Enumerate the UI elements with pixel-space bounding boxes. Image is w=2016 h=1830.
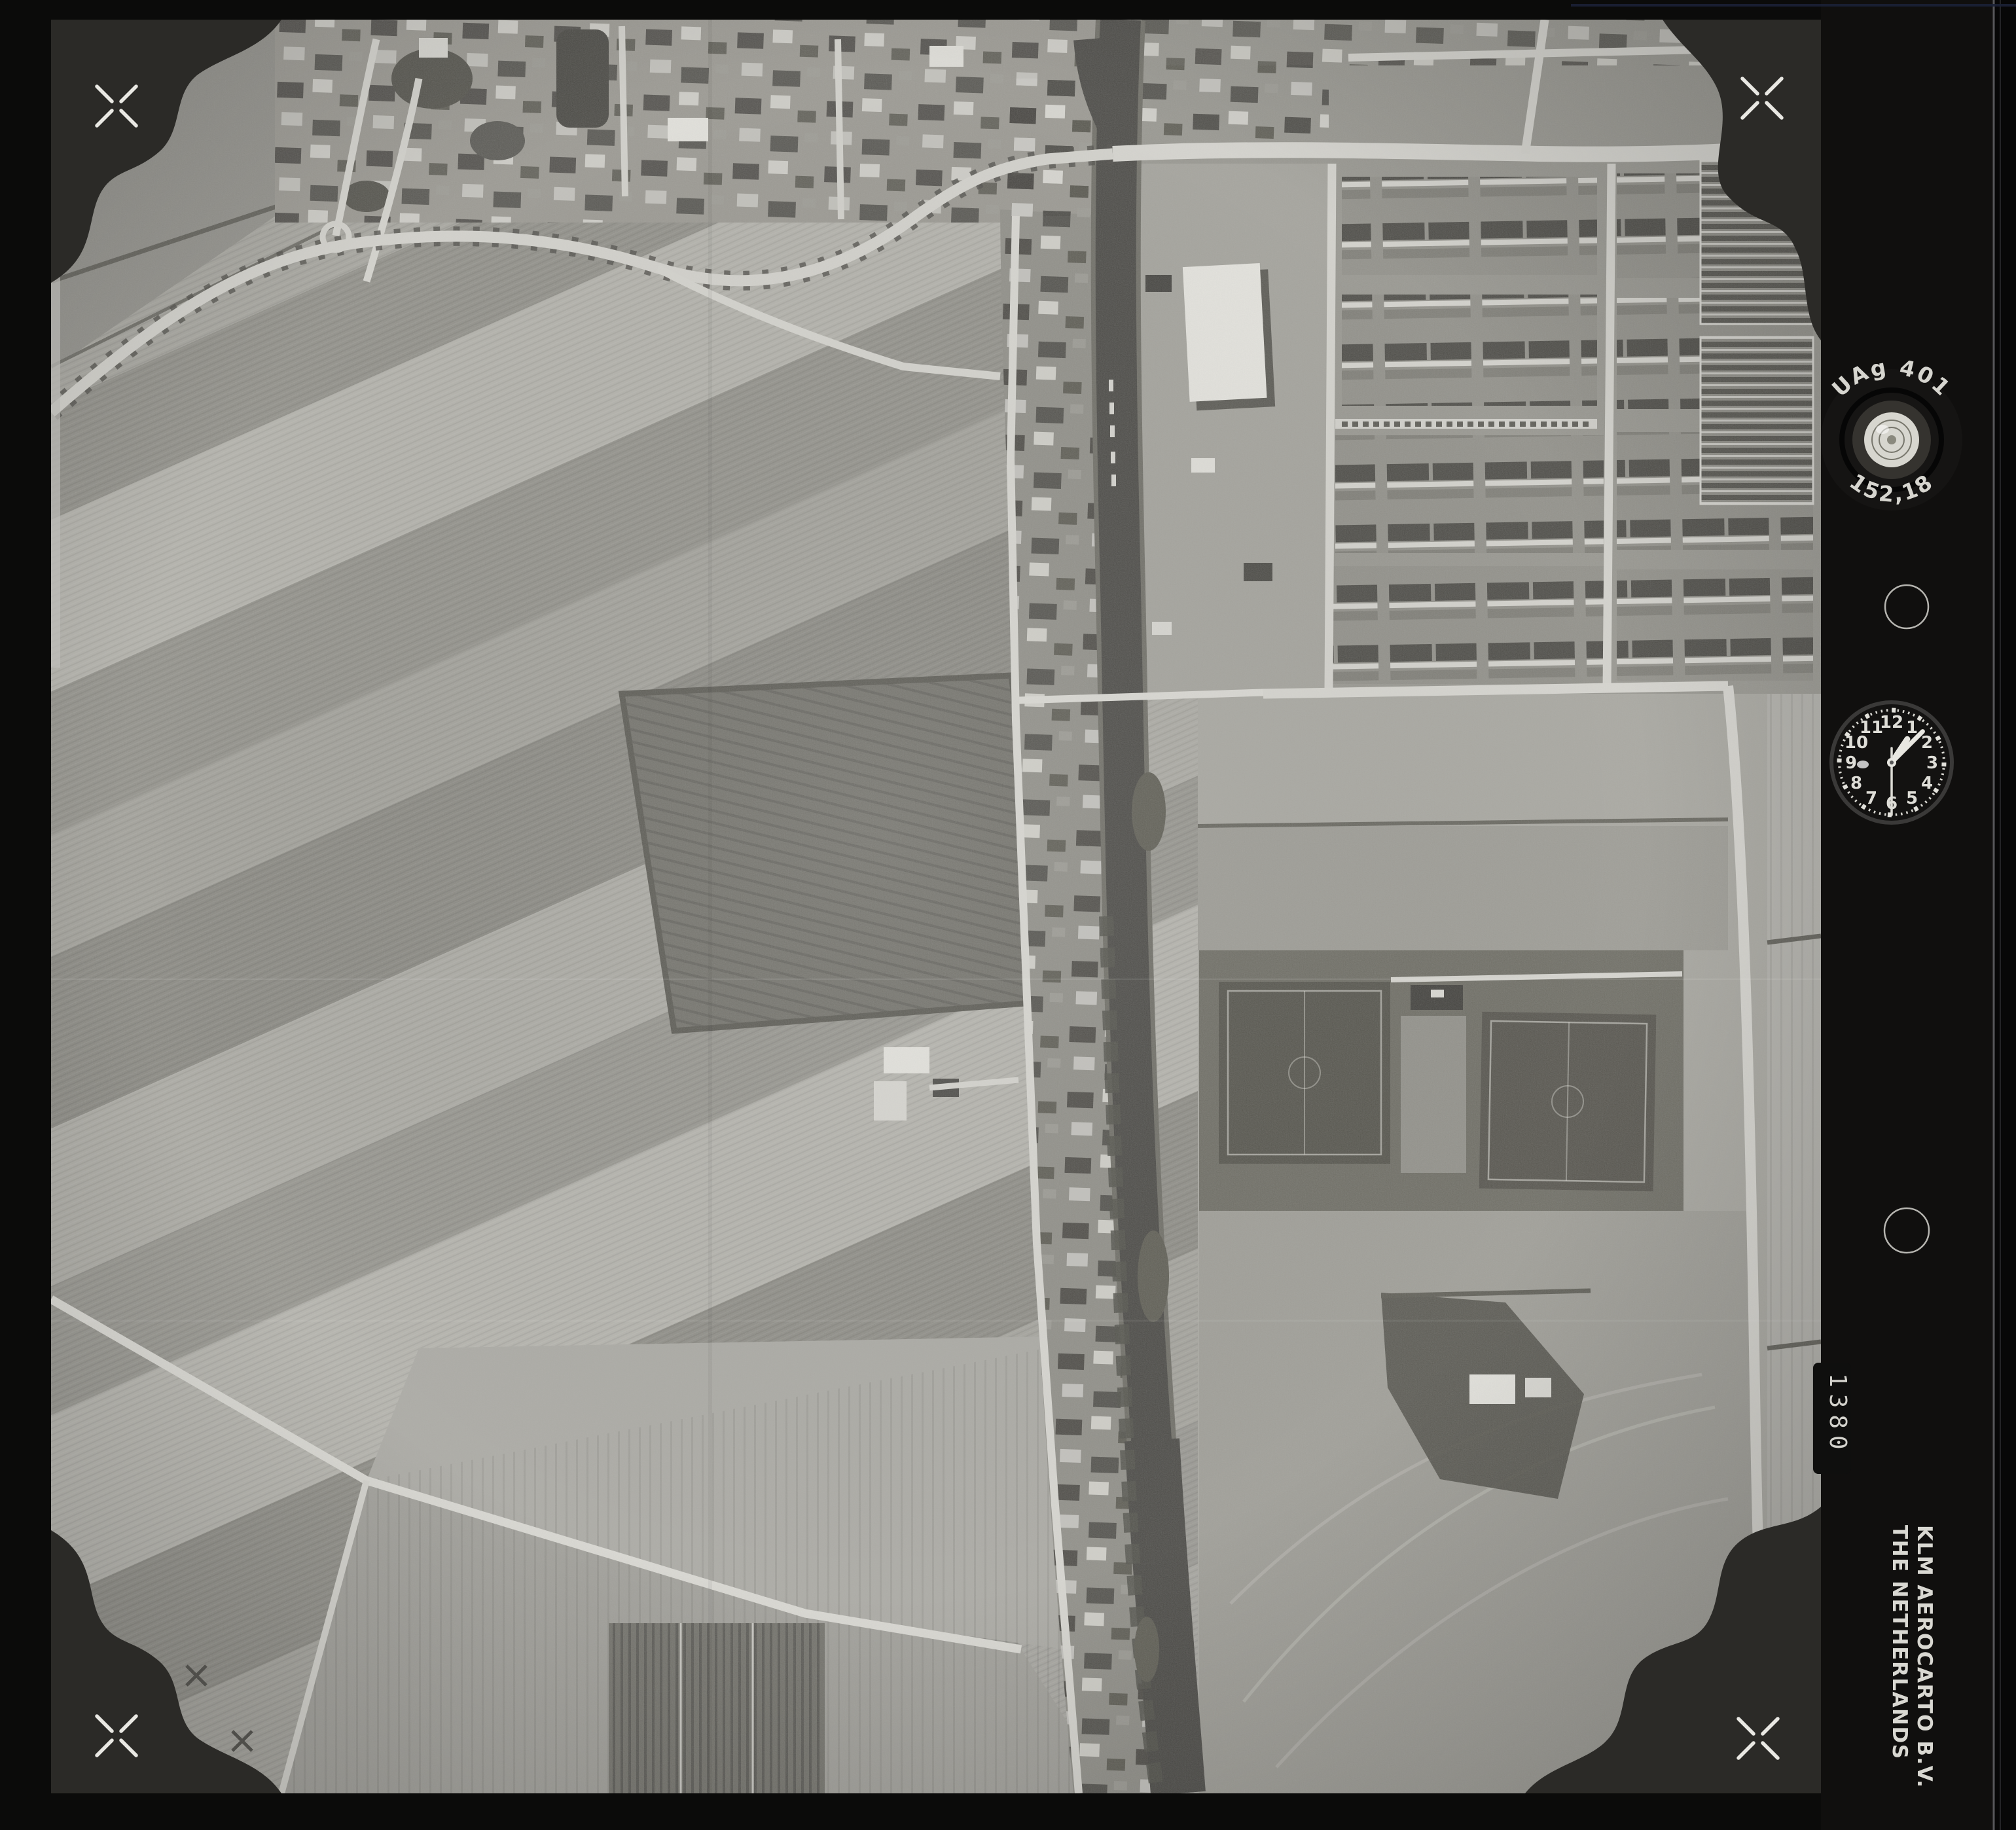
frame-counter: 1380 [1813, 1363, 1851, 1474]
level-bubble [1887, 435, 1896, 444]
frame-border-left [0, 0, 51, 1830]
frame-border-bottom [0, 1793, 2016, 1830]
aerial-photo-frame: UAg 401 152,18 12 1 2 3 4 5 6 7 8 [0, 0, 2016, 1830]
svg-text:4: 4 [1921, 774, 1933, 793]
svg-text:1: 1 [1906, 718, 1918, 738]
vignette [51, 20, 1821, 1793]
svg-text:8: 8 [1850, 774, 1862, 793]
svg-text:3: 3 [1926, 753, 1938, 773]
glass-reflection [1857, 761, 1869, 768]
svg-text:5: 5 [1906, 789, 1918, 808]
frame-border-top [0, 0, 2016, 20]
svg-text:11: 11 [1860, 718, 1883, 738]
svg-text:7: 7 [1865, 789, 1877, 808]
imprint-line1: KLM AEROCARTO B.V. [1913, 1525, 1936, 1789]
svg-text:1380: 1380 [1824, 1373, 1851, 1456]
aerial-photograph [0, 0, 2016, 1830]
film-scan: UAg 401 152,18 12 1 2 3 4 5 6 7 8 [0, 0, 2016, 1830]
svg-text:2: 2 [1921, 733, 1933, 753]
bubble-level-instrument: UAg 401 152,18 [1821, 354, 1962, 511]
imprint-line2: THE NETHERLANDS [1888, 1525, 1911, 1760]
clock-instrument: 12 1 2 3 4 5 6 7 8 9 10 11 [1831, 702, 1952, 823]
svg-text:9: 9 [1845, 753, 1857, 773]
svg-text:12: 12 [1880, 713, 1903, 732]
